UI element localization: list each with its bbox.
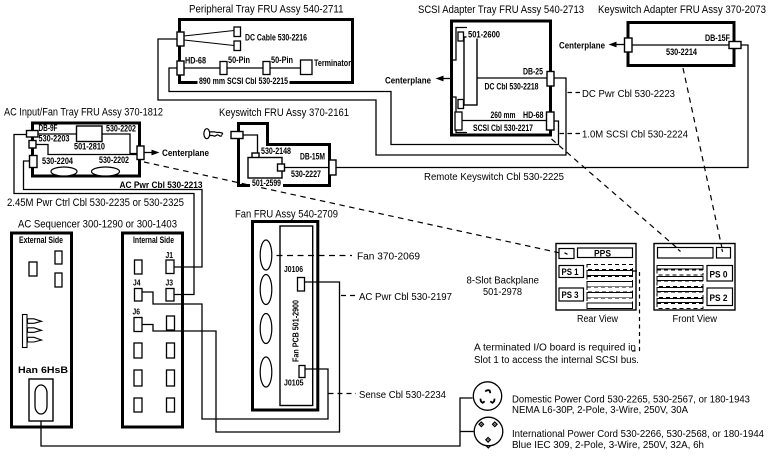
svg-text:AC Sequencer 300-1290 or 300-1: AC Sequencer 300-1290 or 300-1403 bbox=[18, 219, 177, 231]
svg-text:AC Input/Fan Tray FRU Assy 370: AC Input/Fan Tray FRU Assy 370-1812 bbox=[4, 107, 163, 119]
svg-text:530-2202: 530-2202 bbox=[99, 155, 129, 166]
svg-text:890 mm SCSI Cbl 530-2215: 890 mm SCSI Cbl 530-2215 bbox=[199, 76, 289, 87]
svg-text:530-2148: 530-2148 bbox=[261, 146, 291, 157]
svg-text:AC Pwr Cbl 530-2197: AC Pwr Cbl 530-2197 bbox=[359, 292, 452, 303]
svg-text:Keyswitch FRU Assy 370-2161: Keyswitch FRU Assy 370-2161 bbox=[219, 107, 349, 119]
svg-text:Terminator: Terminator bbox=[314, 58, 351, 69]
svg-text:530-2214: 530-2214 bbox=[666, 47, 698, 58]
svg-text:Rear View: Rear View bbox=[577, 314, 619, 325]
svg-text:Remote Keyswitch Cbl 530-222: Remote Keyswitch Cbl 530-2225 bbox=[424, 172, 564, 183]
svg-text:501-2978: 501-2978 bbox=[483, 287, 522, 298]
svg-text:SCSI Adapter Tray FRU Assy 540: SCSI Adapter Tray FRU Assy 540-2713 bbox=[418, 4, 584, 16]
svg-text:External Side: External Side bbox=[19, 235, 63, 246]
svg-text:J0106: J0106 bbox=[284, 264, 303, 274]
svg-text:Centerplane: Centerplane bbox=[162, 148, 209, 159]
svg-text:DB-9F: DB-9F bbox=[39, 123, 58, 134]
svg-text:Keyswitch Adapter FRU Assy 370: Keyswitch Adapter FRU Assy 370-2073 bbox=[598, 4, 766, 16]
svg-text:Han 6HsB: Han 6HsB bbox=[18, 365, 68, 376]
svg-text:50-Pin: 50-Pin bbox=[271, 55, 293, 66]
svg-text:NEMA L6-30P, 2-Pole, 3-Wire, 2: NEMA L6-30P, 2-Pole, 3-Wire, 250V, 30A bbox=[512, 405, 688, 416]
svg-text:HD-68: HD-68 bbox=[185, 56, 206, 67]
svg-text:530-2203: 530-2203 bbox=[39, 134, 70, 145]
svg-text:J0105: J0105 bbox=[284, 378, 304, 388]
svg-text:PPS: PPS bbox=[594, 249, 611, 260]
svg-text:DC Cbl 530-2218: DC Cbl 530-2218 bbox=[485, 82, 539, 93]
svg-text:HD-68: HD-68 bbox=[523, 110, 544, 121]
svg-text:DB-15F: DB-15F bbox=[705, 33, 730, 44]
svg-text:SCSI Cbl 530-2217: SCSI Cbl 530-2217 bbox=[473, 123, 533, 134]
svg-text:501-2599: 501-2599 bbox=[252, 178, 281, 189]
svg-text:Sense Cbl 530-2234: Sense Cbl 530-2234 bbox=[359, 390, 446, 401]
svg-text:501-2810: 501-2810 bbox=[74, 142, 105, 153]
svg-text:PS 1: PS 1 bbox=[562, 267, 580, 278]
svg-text:Domestic Power Cord 530-226: Domestic Power Cord 530-2265, 530-2567, … bbox=[512, 395, 750, 406]
svg-text:AC Pwr Cbl 530-2213: AC Pwr Cbl 530-2213 bbox=[120, 180, 203, 191]
svg-text:Centerplane: Centerplane bbox=[385, 76, 431, 87]
svg-text:A terminated I/O board is requ: A terminated I/O board is required in bbox=[474, 343, 636, 354]
svg-text:DB-15M: DB-15M bbox=[300, 152, 325, 163]
svg-text:Front View: Front View bbox=[673, 314, 718, 325]
svg-text:1.0M SCSI Cbl 530-2224: 1.0M SCSI Cbl 530-2224 bbox=[582, 130, 688, 141]
svg-text:530-2204: 530-2204 bbox=[42, 156, 74, 167]
svg-text:J6: J6 bbox=[133, 307, 141, 317]
svg-text:DC Pwr Cbl 530-2223: DC Pwr Cbl 530-2223 bbox=[582, 89, 675, 100]
svg-text:50-Pin: 50-Pin bbox=[228, 55, 250, 66]
svg-text:Slot 1 to access the internal: Slot 1 to access the internal SCSI bus. bbox=[474, 355, 639, 366]
svg-text:Fan FRU Assy 540-2709: Fan FRU Assy 540-2709 bbox=[235, 209, 338, 221]
svg-text:Blue IEC 309, 2-Pole, 3-Wire,: Blue IEC 309, 2-Pole, 3-Wire, 250V, 32A,… bbox=[512, 440, 704, 451]
svg-text:J1: J1 bbox=[166, 250, 174, 260]
svg-text:Internal Side: Internal Side bbox=[133, 235, 174, 246]
svg-text:J4: J4 bbox=[133, 278, 141, 288]
svg-text:PS 0: PS 0 bbox=[710, 270, 728, 281]
svg-text:Peripheral Tray FRU Assy 540-: Peripheral Tray FRU Assy 540-2711 bbox=[189, 4, 344, 16]
svg-text:260 mm: 260 mm bbox=[491, 110, 516, 121]
svg-text:8-Slot Backplane: 8-Slot Backplane bbox=[467, 276, 540, 287]
svg-text:530-2202: 530-2202 bbox=[106, 124, 136, 135]
svg-text:DC Cable 530-2216: DC Cable 530-2216 bbox=[245, 33, 307, 44]
svg-text:PS 3: PS 3 bbox=[562, 290, 579, 301]
svg-text:501-2600: 501-2600 bbox=[468, 30, 500, 41]
svg-text:2.45M Pwr Ctrl Cbl 530-2235 or: 2.45M Pwr Ctrl Cbl 530-2235 or 530-2325 bbox=[7, 197, 184, 209]
svg-text:530-2227: 530-2227 bbox=[291, 169, 321, 180]
svg-text:International Power Cord 53: International Power Cord 530-2266, 530-2… bbox=[512, 429, 764, 440]
svg-text:Fan PCB 501-2900: Fan PCB 501-2900 bbox=[291, 300, 301, 362]
svg-text:J3: J3 bbox=[166, 278, 174, 288]
svg-text:Fan 370-2069: Fan 370-2069 bbox=[357, 252, 420, 263]
svg-text:Centerplane: Centerplane bbox=[559, 41, 605, 52]
svg-text:PS 2: PS 2 bbox=[710, 293, 728, 304]
svg-text:DB-25: DB-25 bbox=[523, 67, 544, 78]
